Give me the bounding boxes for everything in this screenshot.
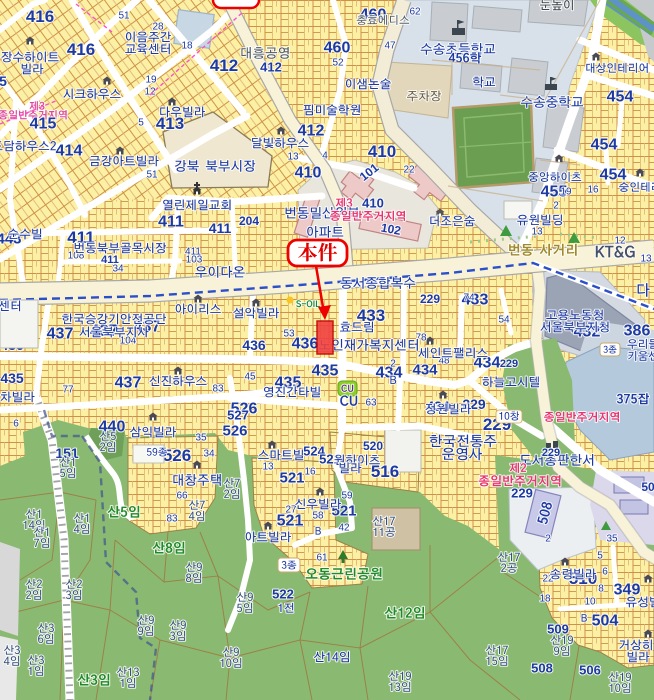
svg-text:520: 520 [363, 439, 383, 453]
svg-text:434: 434 [412, 361, 438, 378]
svg-text:526: 526 [163, 446, 191, 465]
svg-text:437: 437 [115, 375, 142, 392]
svg-text:47: 47 [384, 41, 396, 52]
svg-text:229: 229 [511, 486, 533, 501]
svg-text:42: 42 [338, 523, 350, 534]
svg-text:527: 527 [227, 408, 249, 423]
svg-text:521: 521 [279, 469, 304, 486]
svg-text:53: 53 [283, 329, 295, 340]
svg-text:6: 6 [602, 567, 608, 578]
svg-text:13: 13 [531, 227, 543, 238]
svg-text:521: 521 [331, 502, 356, 519]
svg-text:416: 416 [26, 7, 54, 26]
svg-text:52: 52 [332, 58, 344, 69]
svg-text:58: 58 [312, 511, 324, 522]
svg-text:27: 27 [285, 505, 297, 516]
svg-text:61: 61 [316, 553, 328, 564]
svg-text:35: 35 [195, 433, 207, 444]
svg-text:229: 229 [542, 447, 560, 459]
svg-text:416: 416 [67, 40, 95, 59]
svg-text:77: 77 [62, 385, 74, 396]
svg-text:526: 526 [222, 422, 247, 439]
svg-text:386: 386 [624, 323, 651, 340]
svg-text:16: 16 [587, 185, 599, 196]
svg-text:508: 508 [531, 661, 553, 676]
svg-text:19: 19 [145, 75, 157, 86]
svg-text:410: 410 [368, 142, 396, 161]
svg-text:18: 18 [181, 41, 193, 52]
svg-text:437: 437 [47, 326, 74, 343]
svg-text:436: 436 [292, 336, 319, 353]
svg-text:504: 504 [592, 613, 619, 630]
svg-text:2: 2 [545, 534, 551, 545]
svg-text:204: 204 [239, 214, 259, 228]
svg-text:59: 59 [341, 491, 353, 502]
svg-text:229: 229 [500, 358, 518, 370]
svg-text:506: 506 [579, 663, 601, 678]
svg-text:10: 10 [584, 597, 596, 608]
svg-text:35: 35 [606, 534, 618, 545]
svg-text:410: 410 [295, 165, 322, 182]
svg-text:460: 460 [324, 40, 351, 57]
svg-text:54: 54 [498, 315, 510, 326]
svg-text:34: 34 [112, 264, 124, 275]
svg-text:412: 412 [260, 60, 282, 75]
svg-text:63: 63 [365, 398, 377, 409]
svg-text:6: 6 [13, 419, 19, 430]
svg-text:51: 51 [118, 11, 130, 22]
svg-text:522: 522 [272, 587, 294, 602]
svg-text:13: 13 [287, 152, 299, 163]
svg-text:5: 5 [0, 73, 7, 89]
svg-text:18: 18 [539, 594, 551, 605]
svg-text:5: 5 [138, 118, 144, 129]
svg-text:2: 2 [390, 359, 396, 370]
svg-text:411: 411 [209, 220, 232, 236]
svg-text:51: 51 [146, 170, 158, 181]
svg-text:12: 12 [144, 87, 156, 98]
svg-text:13: 13 [640, 254, 652, 265]
svg-text:415: 415 [30, 116, 57, 133]
svg-text:83: 83 [166, 514, 178, 525]
svg-text:50: 50 [641, 480, 654, 494]
svg-text:229: 229 [420, 292, 440, 306]
svg-text:435: 435 [0, 370, 24, 386]
svg-text:349: 349 [614, 582, 641, 599]
svg-text:5: 5 [597, 551, 603, 562]
svg-text:454: 454 [600, 167, 627, 184]
svg-text:22: 22 [403, 165, 415, 176]
svg-text:411: 411 [158, 214, 184, 231]
svg-text:434: 434 [376, 365, 403, 382]
svg-text:62: 62 [409, 7, 421, 18]
svg-text:28: 28 [152, 22, 164, 33]
svg-text:454: 454 [607, 89, 634, 106]
svg-text:435: 435 [312, 363, 339, 380]
svg-text:19: 19 [560, 187, 572, 198]
svg-text:412: 412 [298, 123, 325, 140]
svg-text:83: 83 [212, 384, 224, 395]
svg-text:45: 45 [244, 372, 256, 383]
svg-text:410: 410 [362, 196, 384, 211]
svg-text:74: 74 [463, 293, 475, 304]
svg-text:66: 66 [176, 491, 188, 502]
svg-text:454: 454 [591, 137, 618, 154]
svg-text:4: 4 [322, 151, 328, 162]
svg-text:2: 2 [553, 201, 559, 212]
svg-text:12: 12 [614, 236, 626, 247]
svg-text:436: 436 [242, 337, 266, 353]
svg-text:414: 414 [56, 143, 83, 160]
svg-text:13: 13 [262, 462, 274, 473]
svg-text:103: 103 [186, 255, 203, 266]
svg-text:8: 8 [598, 584, 604, 595]
svg-text:412: 412 [210, 56, 238, 75]
svg-text:16: 16 [304, 467, 316, 478]
svg-text:413: 413 [156, 114, 184, 133]
svg-text:34: 34 [203, 449, 215, 460]
